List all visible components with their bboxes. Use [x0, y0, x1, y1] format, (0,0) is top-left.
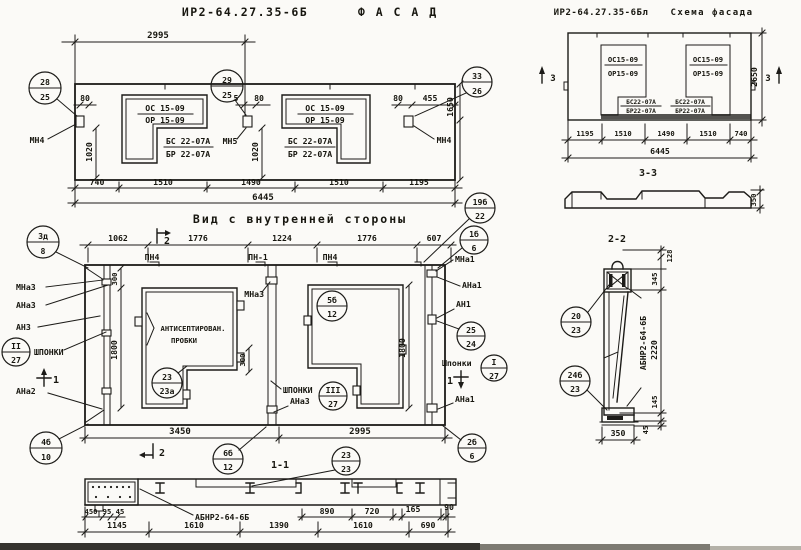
facade-dim-2995: 2995 [147, 31, 169, 41]
facade-title: Ф А С А Д [358, 5, 438, 19]
sec11-left-block-inner [88, 482, 135, 502]
callout-bottom: 27 [328, 399, 338, 409]
facade-d1020-left: 1020 [84, 142, 94, 162]
inner-ana1-top-leader [437, 277, 460, 286]
inner-an1-label: АН1 [456, 299, 471, 309]
scheme-blk-right-top: БС22-07А [675, 99, 705, 106]
facade-win-right-label-top: ОС 15-09 [305, 103, 345, 113]
facade-scheme: ИР2-64.27.35-6Бл Схема фасада ОС15-09 ОР… [539, 8, 782, 213]
sec11-d690: 690 [421, 520, 436, 530]
inner-mna3-left-leader [46, 280, 103, 287]
facade-d80-right: 80 [393, 93, 403, 103]
inner-ana3-mid-label: АНа3 [290, 396, 310, 406]
callout-top: 3д [38, 231, 48, 241]
section-mark-1-left-label: 1 [53, 375, 59, 386]
facade-d1510b: 1510 [329, 177, 349, 187]
inner-right-rib-plate-bot [427, 404, 437, 412]
inner-winL-bolt-b [237, 301, 244, 310]
inner-shponki-mid-label: ШПОНКИ [283, 385, 313, 395]
callout-bottom: 27 [489, 371, 499, 381]
section-mark-3-left-label: 3 [550, 74, 555, 84]
scheme-d1490: 1490 [657, 129, 674, 138]
inner-d3450: 3450 [169, 427, 191, 437]
callout-top: II [11, 341, 21, 351]
callout-bottom: 23а [160, 386, 175, 396]
inner-plugs-leaders [147, 313, 154, 345]
facade-d1510a: 1510 [153, 177, 173, 187]
section-mark-2-bottom: 2 [139, 444, 165, 459]
facade-win-right-label-bot: ОР 15-09 [305, 115, 345, 125]
scheme-blk-left-bot: БР22-07А [626, 108, 656, 115]
inner-an3-label: АН3 [16, 322, 31, 332]
blueprint-page: ИР2-64.27.35-6Б Ф А С А Д 2995 ОС 15-09 … [0, 0, 801, 550]
callout-top: 29 [222, 75, 232, 85]
sec11-label-leader [140, 489, 193, 515]
inner-left-vert-dim [118, 265, 124, 411]
facade-mn5-leader [237, 128, 246, 139]
inner-ana1-top-label: АНа1 [462, 280, 482, 290]
inner-d300b: 300 [238, 354, 247, 367]
sec22-label: АБНР2-64-6Б [638, 316, 648, 370]
inner-plugs-line1: АНТИСЕПТИРОВАН. [161, 324, 226, 333]
facade-mn4-right-label: МН4 [437, 135, 452, 145]
sec22-body-inner [604, 292, 624, 410]
sec22-d2220: 2220 [649, 340, 659, 360]
callout-bottom: 22 [475, 211, 485, 221]
facade-mn4-left-leader [48, 124, 76, 139]
scheme-d1195: 1195 [576, 129, 593, 138]
sec11-d720: 720 [365, 506, 380, 516]
facade-blk-left-label-bot: БР 22-07А [166, 149, 210, 159]
inner-winR-bolt-c [353, 386, 360, 395]
section-mark-2-top-label: 2 [164, 236, 170, 247]
facade-blk-left-label-top: БС 22-07А [166, 136, 210, 146]
sec22-base-lines [600, 422, 638, 425]
scheme-win-right-top: ОС15-09 [693, 55, 723, 64]
inner-winL-bolt-a [135, 317, 142, 326]
inner-d1800l: 1800 [109, 340, 119, 360]
inner-d1224: 1224 [272, 233, 292, 243]
facade-d1490: 1490 [241, 177, 261, 187]
inner-mna1-label: МНа1 [455, 254, 475, 264]
sec11-d1610b: 1610 [353, 520, 373, 530]
anchor-mn4-right-mark [404, 116, 413, 127]
facade-mn5-label: МН5 [223, 136, 238, 146]
callout-28-25: 28 25 [29, 72, 77, 116]
section-mark-2-top: 2 [157, 229, 171, 247]
callout-2b-6: 2б 6 [442, 425, 486, 462]
section-mark-3-right: 3 [765, 66, 782, 84]
inner-d300a: 300 [110, 273, 119, 286]
callout-top: 25 [466, 325, 476, 335]
scan-band-mid [480, 544, 710, 550]
scheme-win-left-bot: ОР15-09 [608, 69, 638, 78]
inner-title: Вид с внутренней стороны [193, 212, 407, 226]
scheme-d1510a: 1510 [614, 129, 631, 138]
scheme-d740: 740 [735, 129, 748, 138]
inner-mid-rib-plate-top [266, 277, 277, 284]
callout-bottom: 12 [327, 309, 337, 319]
section-2-2-title: 2-2 [608, 234, 626, 245]
section-3-3-profile [565, 191, 751, 208]
section-1-1: 1-1 23 23 АБНР2-64-6Б 450 95 45 [78, 447, 456, 537]
callout-bottom: 23 [570, 384, 580, 394]
sec11-left-block [85, 479, 138, 505]
callout-top: III [326, 385, 341, 395]
scan-band-dark [0, 543, 480, 550]
callout-bottom: 25 [222, 90, 232, 100]
sec22-d350: 350 [611, 428, 626, 438]
section-mark-3-right-label: 3 [765, 74, 770, 84]
inner-d607: 607 [427, 233, 442, 243]
inner-left-rib [86, 265, 110, 425]
inner-d1800r: 1800 [397, 338, 407, 358]
sec11-d1390: 1390 [269, 520, 289, 530]
callout-4b-10: 4б 10 [30, 424, 88, 464]
callout-top: 1б [469, 229, 479, 239]
callout-3d-8: 3д 8 [27, 226, 88, 268]
sec11-d90: 90 [444, 502, 454, 512]
anchor-mn5-mark [243, 116, 252, 127]
section-mark-1-left: 1 [37, 368, 59, 386]
callout-bottom: 26 [472, 86, 482, 96]
callout-top: 23 [341, 450, 351, 460]
facade-d1020-mid: 1020 [250, 142, 260, 162]
inner-mid-rib-plate-bot [267, 406, 277, 413]
callout-top: 24б [568, 370, 583, 380]
callout-top: 23 [162, 372, 172, 382]
callout-bottom: 27 [11, 355, 21, 365]
inner-view: Вид с внутренней стороны 1062 1776 1224 … [2, 193, 507, 474]
scan-artifact [0, 543, 801, 550]
facade-d455: 455 [423, 93, 438, 103]
sec22-d45: 45 [641, 426, 650, 435]
anchor-mn4-left-mark [76, 116, 84, 127]
inner-d1776b: 1776 [357, 233, 377, 243]
inner-shponki-right-label: Шпонки [442, 358, 472, 368]
callout-bottom: 25 [40, 92, 50, 102]
callout-bottom: 23 [571, 325, 581, 335]
inner-mna3-mid-label: МНа3 [244, 289, 264, 299]
inner-left-rib-plate-bot [102, 388, 111, 394]
sec22-lifting-loop [612, 262, 623, 270]
sec22-plate-bar-right [622, 274, 626, 287]
inner-plugs-line2: ПРОБКИ [171, 336, 197, 345]
inner-ana3-left-label: АНа3 [16, 300, 36, 310]
inner-d1776a: 1776 [188, 233, 208, 243]
sec11-d165: 165 [406, 504, 421, 514]
callout-top: 33 [472, 71, 482, 81]
callout-II-27: II 27 [2, 338, 30, 366]
drawing-canvas: ИР2-64.27.35-6Б Ф А С А Д 2995 ОС 15-09 … [0, 0, 801, 550]
scheme-win-right-bot: ОР15-09 [693, 69, 723, 78]
facade-win-left-label-bot: ОР 15-09 [145, 115, 185, 125]
callout-5b-12: 5б 12 [317, 291, 347, 321]
callout-top: 28 [40, 77, 50, 87]
scheme-d1510b: 1510 [699, 129, 716, 138]
facade-mn4-left-label: МН4 [30, 135, 45, 145]
inner-right-rib-bolt [428, 315, 436, 324]
inner-ana2-leader [48, 393, 102, 409]
sec11-d890: 890 [320, 506, 335, 516]
callout-20-23: 20 23 [561, 285, 609, 337]
section-3-3-d350: 350 [749, 194, 758, 207]
callout-bottom: 12 [223, 462, 233, 472]
callout-bottom: 8 [41, 246, 46, 256]
facade-blk-right-label-bot: БР 22-07А [288, 149, 332, 159]
callout-III-27: III 27 [319, 382, 347, 410]
callout-bottom: 23 [341, 464, 351, 474]
inner-mna3-left-label: МНа3 [16, 282, 36, 292]
section-3-3-title: 3-3 [639, 168, 657, 179]
inner-ana1-bot-label: АНа1 [455, 394, 475, 404]
inner-winR-bolt-a [304, 316, 311, 325]
inner-middle-rib [268, 265, 276, 425]
callout-bottom: 6 [472, 243, 477, 253]
scheme-blk-left-top: БС22-07А [626, 99, 656, 106]
section-mark-2-bottom-label: 2 [159, 448, 165, 459]
section-1-1-title: 1-1 [271, 460, 289, 471]
callout-23-23: 23 23 [252, 447, 360, 486]
inner-pn1: ПН-1 [248, 252, 268, 262]
callout-6b-12: 6б 12 [213, 427, 266, 474]
inner-an3-leader [38, 316, 100, 327]
inner-ana3-left-leader [46, 285, 108, 305]
section-2-2: 2-2 АБНР2-64-6Б 128 345 2220 145 45 350 … [560, 234, 674, 444]
callout-top: 2б [467, 437, 477, 447]
callout-I-27: I 27 [481, 355, 507, 381]
callout-29-25: 29 25 [211, 70, 246, 115]
facade-d80-left: 80 [80, 93, 90, 103]
sec22-base-fill [607, 416, 623, 420]
callout-24b-23: 24б 23 [560, 366, 607, 410]
inner-shponki-left-label: ШПОНКИ [34, 347, 64, 357]
facade-d6445: 6445 [252, 193, 274, 203]
scheme-panel-outline [568, 33, 751, 120]
sec11-d1145: 1145 [107, 520, 127, 530]
sec11-d1610a: 1610 [184, 520, 204, 530]
inner-bottom-dim-lines [80, 427, 452, 443]
facade-win-left-label-top: ОС 15-09 [145, 103, 185, 113]
sec22-d345: 345 [650, 273, 659, 286]
sec22-d145: 145 [650, 396, 659, 409]
callout-bottom: 6 [470, 451, 475, 461]
inner-pn4-b: ПН4 [323, 252, 338, 262]
scheme-title: Схема фасада [670, 8, 753, 18]
facade-view: ИР2-64.27.35-6Б Ф А С А Д 2995 ОС 15-09 … [29, 5, 492, 207]
callout-top: 20 [571, 311, 581, 321]
facade-blk-right-label-top: БС 22-07А [288, 136, 332, 146]
sec22-d128: 128 [665, 250, 674, 263]
inner-right-rib [425, 265, 432, 425]
facade-code: ИР2-64.27.35-6Б [182, 5, 308, 19]
scheme-d2650: 2650 [749, 67, 759, 87]
facade-mn4-right-leader [414, 126, 434, 139]
inner-ana2-label: АНа2 [16, 386, 36, 396]
inner-pn4-a: ПН4 [145, 252, 160, 262]
section-3-3-profile-detail [572, 191, 705, 208]
callout-bottom: 10 [41, 452, 51, 462]
inner-top-dim-lines [80, 245, 456, 262]
callout-top: 19б [473, 197, 488, 207]
scheme-d6445: 6445 [650, 146, 670, 156]
scheme-win-left-top: ОС15-09 [608, 55, 638, 64]
callout-top: 6б [223, 448, 233, 458]
sec11-bottom-dim-lines [78, 507, 455, 537]
inner-d1062: 1062 [108, 233, 128, 243]
facade-d80-mid: 80 [254, 93, 264, 103]
scan-band-light [710, 546, 801, 550]
section-mark-1-right: 1 [447, 371, 468, 389]
inner-winL-bolt-d [183, 390, 190, 399]
callout-top: 4б [41, 437, 51, 447]
facade-d1195: 1195 [409, 177, 429, 187]
callout-top: I [492, 357, 497, 367]
scheme-code: ИР2-64.27.35-6Бл [554, 8, 649, 18]
scheme-blk-right-bot: БР22-07А [675, 108, 705, 115]
facade-d5-80-dim [236, 102, 270, 108]
callout-23-23a: 23 23а [152, 366, 187, 398]
facade-d740: 740 [90, 177, 105, 187]
callout-top: 5б [327, 295, 337, 305]
callout-bottom: 24 [466, 339, 476, 349]
sec11-d450: 450 [85, 507, 98, 516]
section-mark-1-right-label: 1 [447, 376, 453, 387]
section-mark-3-left: 3 [539, 66, 556, 84]
sec11-rebar-dots [92, 486, 131, 498]
inner-d2995: 2995 [349, 427, 371, 437]
